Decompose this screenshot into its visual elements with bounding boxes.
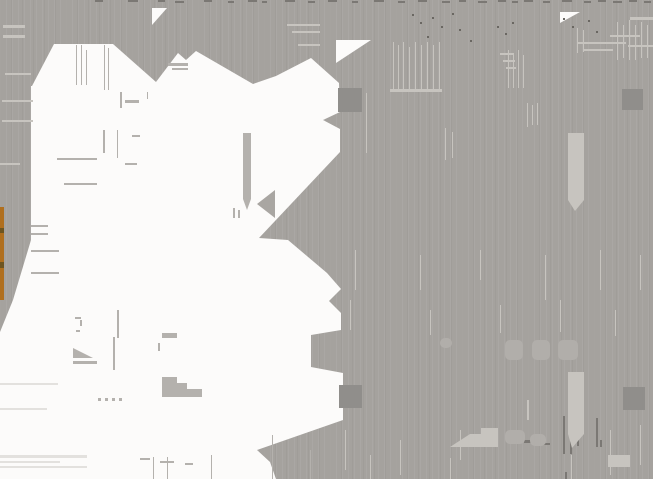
light-line-artifact xyxy=(390,89,442,92)
faint-streak-artifact xyxy=(0,455,87,458)
top-edge-dash xyxy=(629,0,637,2)
dark-line-artifact xyxy=(563,416,565,454)
light-line-artifact xyxy=(403,42,404,90)
selection-handle-top-right[interactable] xyxy=(622,89,643,110)
ghost-blob-artifact xyxy=(505,430,525,444)
light-line-artifact xyxy=(445,128,446,160)
speckle-dot xyxy=(470,40,472,42)
light-line-artifact xyxy=(350,300,351,330)
speckle-dot xyxy=(505,33,507,35)
light-line-artifact xyxy=(623,25,624,58)
speckle-dot xyxy=(572,26,574,28)
light-line-artifact xyxy=(398,45,399,90)
gray-line-artifact xyxy=(76,45,77,85)
gray-line-artifact xyxy=(125,163,137,165)
gray-line-artifact xyxy=(31,225,48,227)
top-edge-dash xyxy=(613,1,622,3)
light-line-artifact xyxy=(578,42,626,44)
light-line-artifact xyxy=(640,425,641,465)
pennant-artifact-1-tip xyxy=(568,200,584,211)
light-line-artifact xyxy=(0,163,20,165)
gray-line-artifact xyxy=(64,183,97,185)
gray-line-artifact xyxy=(140,458,150,460)
small-triangle-underline xyxy=(73,361,97,364)
speckle-dot xyxy=(412,14,414,16)
light-line-artifact xyxy=(287,24,320,26)
gray-line-artifact xyxy=(167,457,168,479)
top-edge-dash xyxy=(478,1,487,3)
gray-line-artifact xyxy=(211,455,212,479)
top-edge-dash xyxy=(328,0,337,2)
top-edge-dash xyxy=(175,1,184,3)
gray-line-artifact xyxy=(272,435,273,479)
orange-strip-gap-2 xyxy=(0,262,4,268)
selection-handle-bottom-left[interactable] xyxy=(339,385,362,408)
selection-handle-bottom-right[interactable] xyxy=(623,387,645,410)
dark-line-artifact xyxy=(596,418,598,447)
light-line-artifact xyxy=(506,67,516,69)
light-staircase-artifact xyxy=(450,428,498,447)
top-edge-dash xyxy=(543,1,550,3)
gray-line-artifact xyxy=(108,48,109,90)
light-line-artifact xyxy=(630,17,653,20)
light-line-artifact xyxy=(298,44,320,46)
top-edge-dash xyxy=(158,0,165,2)
dark-line-artifact xyxy=(565,472,567,479)
light-line-artifact xyxy=(571,455,572,479)
speckle-dot xyxy=(459,29,461,31)
light-line-artifact xyxy=(430,310,431,335)
light-line-artifact xyxy=(450,458,451,479)
light-line-artifact xyxy=(641,22,642,58)
top-edge-dash xyxy=(398,1,405,3)
gray-line-artifact xyxy=(113,337,115,370)
gray-line-artifact xyxy=(31,250,59,252)
light-line-artifact xyxy=(480,250,481,280)
gray-line-artifact xyxy=(103,130,105,153)
light-line-artifact xyxy=(583,30,584,52)
gray-line-artifact xyxy=(31,233,48,235)
top-edge-dash xyxy=(562,0,572,2)
light-line-artifact xyxy=(545,255,546,300)
top-edge-dash xyxy=(95,0,103,2)
white-wedge-3 xyxy=(560,12,580,23)
light-line-artifact xyxy=(292,31,320,33)
light-line-artifact xyxy=(3,25,25,28)
light-line-artifact xyxy=(629,20,630,60)
light-line-artifact xyxy=(527,103,528,127)
white-wedge-1 xyxy=(152,8,167,25)
light-line-artifact xyxy=(415,42,416,90)
light-line-artifact xyxy=(420,255,421,290)
small-tick-artifact xyxy=(158,343,160,351)
gray-line-artifact xyxy=(75,317,81,319)
speckle-dot xyxy=(432,17,434,19)
ghost-blob-artifact xyxy=(558,340,578,360)
light-line-artifact xyxy=(355,250,356,290)
gray-line-artifact xyxy=(147,92,148,99)
light-line-artifact xyxy=(577,28,578,53)
light-line-artifact xyxy=(421,45,422,90)
light-line-artifact xyxy=(3,35,25,38)
dark-line-artifact xyxy=(600,440,602,447)
light-line-artifact xyxy=(393,42,394,90)
light-line-artifact xyxy=(610,35,640,37)
top-edge-dash xyxy=(285,0,295,2)
top-edge-dash xyxy=(442,1,450,3)
light-line-artifact xyxy=(5,73,31,75)
light-line-artifact xyxy=(500,305,501,333)
ghost-blob-artifact xyxy=(530,434,546,446)
light-line-artifact xyxy=(439,42,440,90)
gray-line-artifact xyxy=(132,135,140,137)
selection-handle-top-left[interactable] xyxy=(338,88,362,112)
light-line-artifact xyxy=(647,25,648,58)
top-edge-dash xyxy=(598,0,606,2)
gray-line-artifact xyxy=(112,398,115,401)
light-line-artifact xyxy=(433,45,434,90)
light-line-artifact xyxy=(610,430,611,475)
gray-line-artifact xyxy=(310,450,311,479)
ghost-blob-artifact xyxy=(440,338,452,348)
gray-line-artifact xyxy=(185,463,193,465)
gray-line-artifact xyxy=(86,50,87,85)
top-edge-dash xyxy=(248,0,257,2)
gray-line-artifact xyxy=(168,63,188,66)
gray-line-artifact xyxy=(172,68,188,70)
light-line-artifact xyxy=(2,100,33,102)
top-edge-dash xyxy=(524,0,533,2)
top-edge-dash xyxy=(228,1,234,3)
speckle-dot xyxy=(588,20,590,22)
faint-streak-artifact xyxy=(0,466,87,468)
light-line-artifact xyxy=(640,255,641,290)
gray-line-artifact xyxy=(105,398,108,401)
speckle-dot xyxy=(497,26,499,28)
white-wedge-2 xyxy=(336,40,371,63)
light-line-artifact xyxy=(560,300,561,332)
speckle-dot xyxy=(563,18,565,20)
gray-line-artifact xyxy=(119,398,122,401)
top-edge-dash xyxy=(374,0,384,2)
small-wedge-artifact xyxy=(162,333,177,338)
light-line-artifact xyxy=(345,430,346,470)
speckle-dot xyxy=(452,13,454,15)
pennant-artifact-2 xyxy=(568,372,584,434)
top-edge-dash xyxy=(204,0,212,2)
gray-line-artifact xyxy=(125,100,139,103)
top-edge-dash xyxy=(262,1,267,3)
light-line-artifact xyxy=(583,49,613,51)
top-edge-dash xyxy=(498,0,506,2)
light-line-artifact xyxy=(527,400,529,420)
orange-accent-strip xyxy=(0,207,4,300)
faint-streak-artifact xyxy=(0,383,58,385)
gray-line-artifact xyxy=(233,208,235,218)
speckle-dot xyxy=(420,22,422,24)
light-line-artifact xyxy=(400,440,401,475)
speckle-dot xyxy=(596,31,598,33)
light-line-artifact xyxy=(635,25,636,60)
light-line-artifact xyxy=(628,45,653,47)
light-line-artifact xyxy=(2,120,33,122)
light-line-artifact xyxy=(617,22,618,60)
white-region xyxy=(0,44,343,479)
light-line-artifact xyxy=(366,93,367,153)
light-line-artifact xyxy=(600,250,601,290)
light-block-artifact xyxy=(608,455,630,467)
degraded-screenshot-canvas xyxy=(0,0,653,479)
gray-line-artifact xyxy=(153,457,154,479)
light-line-artifact xyxy=(513,53,514,88)
light-line-artifact xyxy=(370,455,371,479)
gray-line-artifact xyxy=(31,272,59,274)
light-line-artifact xyxy=(518,50,519,88)
light-line-artifact xyxy=(503,60,515,62)
speckle-dot xyxy=(427,36,429,38)
faint-streak-artifact xyxy=(0,461,60,463)
gray-line-artifact xyxy=(76,330,80,332)
top-edge-dash xyxy=(459,0,466,2)
artifact-layer xyxy=(0,0,653,479)
light-line-artifact xyxy=(409,47,410,90)
orange-strip-gap-1 xyxy=(0,228,4,233)
light-line-artifact xyxy=(615,310,616,336)
top-edge-dash xyxy=(644,1,651,3)
gray-line-artifact xyxy=(238,210,240,218)
gray-line-artifact xyxy=(117,310,119,338)
gray-line-artifact xyxy=(104,45,105,90)
speckle-dot xyxy=(441,26,443,28)
light-line-artifact xyxy=(523,55,524,88)
light-line-artifact xyxy=(500,53,514,55)
gray-line-artifact xyxy=(81,45,82,85)
gray-line-artifact xyxy=(120,92,122,108)
speckle-dot xyxy=(512,22,514,24)
pennant-artifact-1 xyxy=(568,133,584,200)
top-edge-dash xyxy=(512,1,518,3)
top-edge-dash xyxy=(128,0,138,2)
ghost-blob-artifact xyxy=(532,340,550,360)
light-line-artifact xyxy=(452,132,453,158)
gray-line-artifact xyxy=(80,320,82,326)
cursor-bar-artifact xyxy=(243,133,251,199)
light-line-artifact xyxy=(427,42,428,90)
gray-line-artifact xyxy=(57,158,97,160)
gray-line-artifact xyxy=(117,130,118,158)
top-edge-dash xyxy=(352,1,358,3)
gray-line-artifact xyxy=(98,398,101,401)
light-line-artifact xyxy=(537,103,538,125)
faint-streak-artifact xyxy=(0,408,47,410)
top-edge-dash xyxy=(584,1,591,3)
ghost-blob-artifact xyxy=(505,340,523,360)
top-edge-dash xyxy=(308,1,315,3)
top-edge-dash xyxy=(418,0,427,2)
light-line-artifact xyxy=(532,105,533,125)
